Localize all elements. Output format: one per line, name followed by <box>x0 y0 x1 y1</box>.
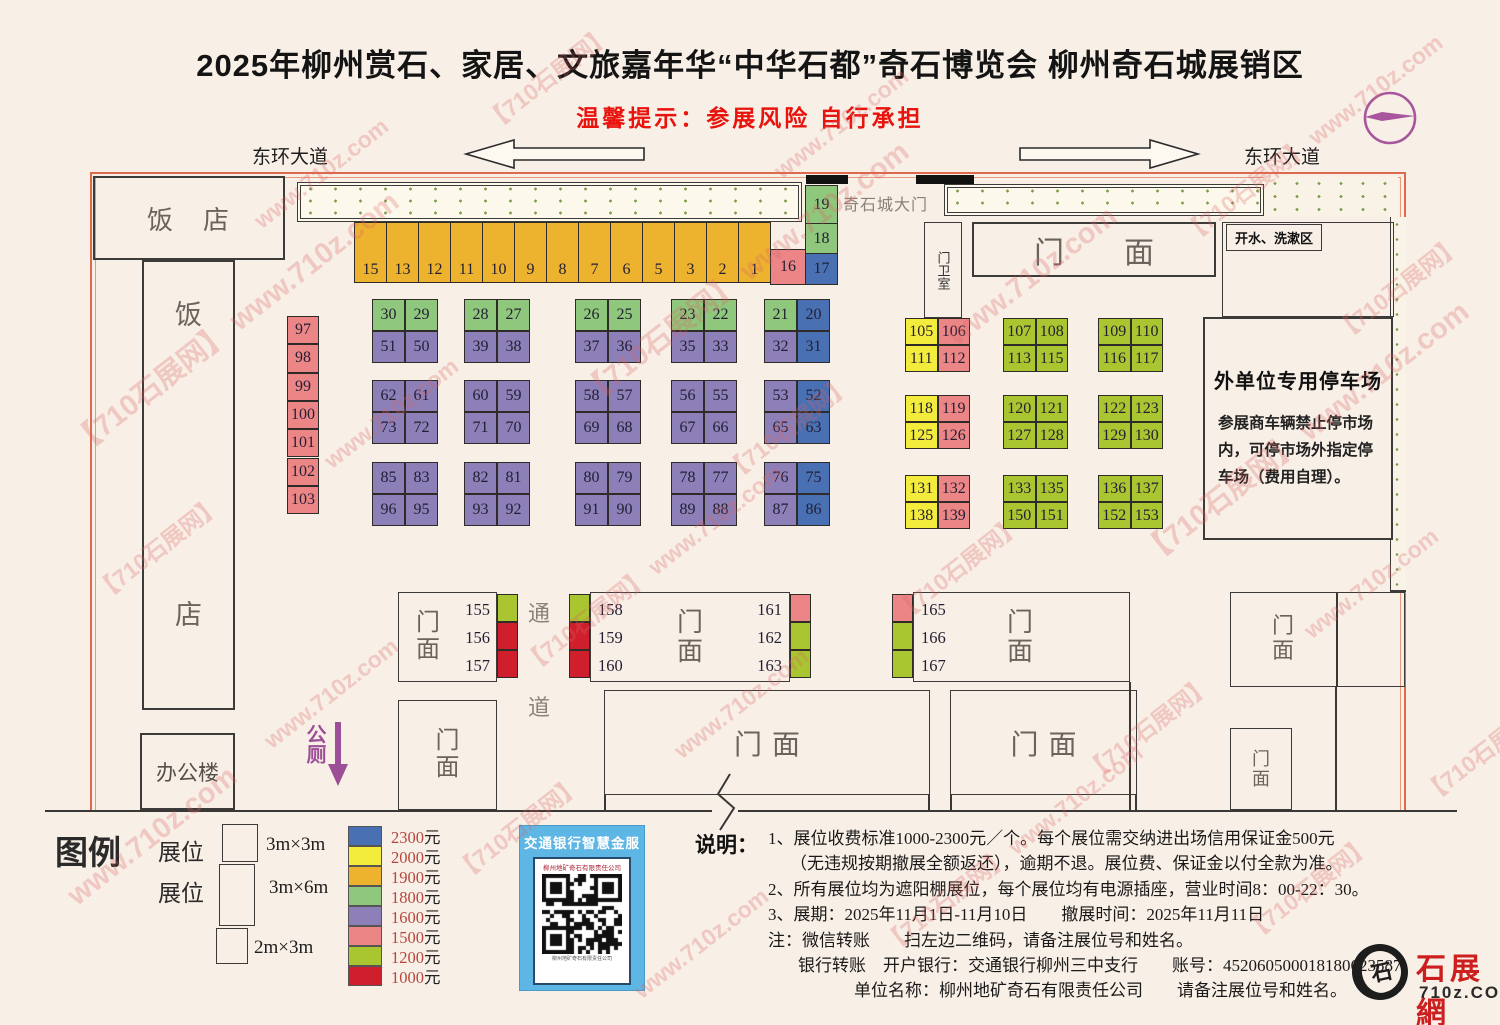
storefront-char-men: 门 <box>416 610 440 637</box>
storefront-char-men: 门 <box>1252 749 1270 769</box>
price-chip <box>892 622 913 650</box>
booth-119: 119 <box>938 395 971 422</box>
note-line: 3、展期：2025年11月1日-11月10日 撤展时间：2025年11月11日 <box>768 902 1408 927</box>
qr-card-header: 交通银行智慧金服 <box>520 832 644 852</box>
restaurant-char-dian: 店 <box>175 600 202 630</box>
booth-31: 31 <box>797 331 830 363</box>
booth-21: 21 <box>764 299 797 331</box>
booth-88: 88 <box>704 494 737 526</box>
storefront-char-men: 门 <box>1007 608 1033 637</box>
price-chip <box>892 594 913 622</box>
booth-36: 36 <box>608 331 641 363</box>
booth-103: 103 <box>287 486 319 514</box>
gate-pillar-left <box>806 175 848 184</box>
note-line: （无违规按期撤展全额返还），逾期不退。展位费、保证金以付全款为准。 <box>768 851 1408 876</box>
booth-8: 8 <box>546 222 579 283</box>
booth-130: 130 <box>1131 422 1164 449</box>
shop-booth-number: 165 <box>921 596 965 624</box>
booth-63: 63 <box>797 412 830 444</box>
booth-127: 127 <box>1003 422 1036 449</box>
booth-15: 15 <box>354 222 387 283</box>
storefront-b-label: 门 面 <box>660 598 720 676</box>
booth-129: 129 <box>1098 422 1131 449</box>
poster-warning: 温馨提示：参展风险 自行承担 <box>0 99 1500 133</box>
shop-booth-number: 155 <box>446 596 490 624</box>
storefront-f-ext-right <box>928 795 930 810</box>
booth-30: 30 <box>372 299 405 331</box>
booth-6: 6 <box>610 222 643 283</box>
restaurant-top-label: 饭 店 <box>93 176 285 260</box>
shop-booth-number: 167 <box>921 652 965 680</box>
storefront-char-men: 门 <box>1034 228 1064 272</box>
booth-111: 111 <box>905 345 938 372</box>
booth-61: 61 <box>405 380 438 412</box>
booth-2: 2 <box>706 222 739 283</box>
booth-96: 96 <box>372 494 405 526</box>
booth-9: 9 <box>514 222 547 283</box>
qr-card-inner: 柳州地矿奇石有限责任公司 柳州地矿奇石有限责任公司 <box>533 857 631 985</box>
booth-98: 98 <box>287 344 319 372</box>
booth-116: 116 <box>1098 345 1131 372</box>
booth-101: 101 <box>287 429 319 457</box>
booth-109: 109 <box>1098 318 1131 345</box>
legend-size-box-3 <box>216 928 248 964</box>
toilet-arrow-icon <box>326 722 350 788</box>
booth-66: 66 <box>704 412 737 444</box>
legend-price-swatch <box>348 826 382 846</box>
office-label: 办公楼 <box>140 733 235 810</box>
booth-78: 78 <box>671 462 704 494</box>
storefront-char-men: 门 <box>1272 614 1294 639</box>
booth-37: 37 <box>575 331 608 363</box>
booth-121: 121 <box>1036 395 1069 422</box>
booth-122: 122 <box>1098 395 1131 422</box>
legend-size-box-1 <box>222 824 258 862</box>
booth-60: 60 <box>464 380 497 412</box>
booth-50: 50 <box>405 331 438 363</box>
legend-price-swatch <box>348 906 382 926</box>
site-logo-domain: 710z.COM <box>1419 983 1500 1003</box>
legend-price-swatch <box>348 946 382 966</box>
booth-107: 107 <box>1003 318 1036 345</box>
booth-1: 1 <box>738 222 771 283</box>
note-line: 注：微信转账 扫左边二维码，请备注展位号和姓名。 <box>768 928 1408 953</box>
legend-size-dims-3: 2m×3m <box>254 937 313 959</box>
storefront-char-men: 门 <box>677 608 703 637</box>
booth-93: 93 <box>464 494 497 526</box>
legend-size-dims-1: 3m×3m <box>266 834 325 856</box>
booth-106: 106 <box>938 318 971 345</box>
booth-26: 26 <box>575 299 608 331</box>
booth-126: 126 <box>938 422 971 449</box>
booth-113: 113 <box>1003 345 1036 372</box>
booth-67: 67 <box>671 412 704 444</box>
booth-29: 29 <box>405 299 438 331</box>
parking-box: 外单位专用停车场 参展商车辆禁止停市场内，可停市场外指定停车场（费用自理）。 <box>1203 317 1393 540</box>
storefront-c-label: 门 面 <box>990 598 1050 676</box>
booth-19: 19 <box>805 185 838 224</box>
wall-line-2 <box>1335 687 1337 810</box>
price-chip <box>497 622 518 650</box>
booth-16: 16 <box>770 249 806 285</box>
booth-112: 112 <box>938 345 971 372</box>
booth-11: 11 <box>450 222 483 283</box>
booth-131: 131 <box>905 475 938 502</box>
price-chip <box>569 622 590 650</box>
legend-price-swatch <box>348 966 382 986</box>
gate-pillar-right <box>916 175 974 184</box>
booth-86: 86 <box>797 494 830 526</box>
booth-118: 118 <box>905 395 938 422</box>
booth-120: 120 <box>1003 395 1036 422</box>
road-label-left: 东环大道 <box>252 142 328 169</box>
booth-123: 123 <box>1131 395 1164 422</box>
price-chip <box>790 622 811 650</box>
site-baseline <box>45 810 1457 812</box>
storefront-char-mian: 面 <box>1252 769 1270 789</box>
watermark: www.710z.com <box>629 883 774 1004</box>
booth-76: 76 <box>764 462 797 494</box>
legend-price-swatch <box>348 926 382 946</box>
price-chip <box>892 650 913 678</box>
legend-price-row: 1000元 <box>348 964 441 988</box>
booth-82: 82 <box>464 462 497 494</box>
booth-33: 33 <box>704 331 737 363</box>
legend-price-swatch <box>348 886 382 906</box>
booth-133: 133 <box>1003 475 1036 502</box>
storefront-char-mian: 面 <box>1124 228 1154 272</box>
booth-62: 62 <box>372 380 405 412</box>
booth-70: 70 <box>497 412 530 444</box>
booth-77: 77 <box>704 462 737 494</box>
booth-27: 27 <box>497 299 530 331</box>
shop-booth-number: 159 <box>598 624 642 652</box>
booth-13: 13 <box>386 222 419 283</box>
booth-128: 128 <box>1036 422 1069 449</box>
tree-zone-corner <box>1264 177 1398 217</box>
booth-90: 90 <box>608 494 641 526</box>
storefront-h-label: 门 面 <box>1230 734 1292 804</box>
storefront-char-men: 门 <box>734 723 762 763</box>
shop-booth-number: 158 <box>598 596 642 624</box>
legend-price-swatch <box>348 866 382 886</box>
storefront-e-label: 门 面 <box>398 712 497 798</box>
poster-title: 2025年柳州赏石、家居、文旅嘉年华“中华石都”奇石博览会 柳州奇石城展销区 <box>0 40 1500 85</box>
storefront-g-label: 门 面 <box>950 690 1137 795</box>
expo-floorplan-poster: 【710石展网】 www.710z.comwww.710z.com【710石展网… <box>0 0 1500 1025</box>
storefront-g-ext-right <box>1135 795 1137 810</box>
booth-89: 89 <box>671 494 704 526</box>
booth-51: 51 <box>372 331 405 363</box>
booth-32: 32 <box>764 331 797 363</box>
booth-20: 20 <box>797 299 830 331</box>
site-logo-glyph: 石 <box>1368 955 1395 989</box>
storefront-d-divider <box>1336 593 1338 686</box>
booth-28: 28 <box>464 299 497 331</box>
booth-39: 39 <box>464 331 497 363</box>
water-area-label: 开水、洗漱区 <box>1226 224 1322 251</box>
note-line: 2、所有展位均为遮阳棚展位，每个展位均有电源插座，营业时间8：00-22：30。 <box>768 877 1408 902</box>
restaurant-char-fan: 饭 <box>175 300 202 330</box>
booth-69: 69 <box>575 412 608 444</box>
booth-95: 95 <box>405 494 438 526</box>
notes-block: 1、展位收费标准1000-2300元／个。每个展位需交纳进出场信用保证金500元… <box>768 826 1408 1004</box>
booth-115: 115 <box>1036 345 1069 372</box>
booth-125: 125 <box>905 422 938 449</box>
booth-81: 81 <box>497 462 530 494</box>
booth-56: 56 <box>671 380 704 412</box>
storefront-g-ext-left <box>950 795 952 810</box>
storefront-f-ext-left <box>604 795 606 810</box>
booth-83: 83 <box>405 462 438 494</box>
booth-132: 132 <box>938 475 971 502</box>
compass-icon <box>1352 86 1430 152</box>
booth-152: 152 <box>1098 502 1131 529</box>
baseline-break-icon <box>706 772 746 832</box>
legend-size-label-1: 展位 <box>158 833 204 867</box>
booth-7: 7 <box>578 222 611 283</box>
parking-title: 外单位专用停车场 <box>1205 365 1391 394</box>
corridor-label-bottom: 道 <box>528 690 550 722</box>
storefront-f-label: 门 面 <box>604 690 930 795</box>
storefront-char-men: 门 <box>1010 723 1038 763</box>
storefront-char-men: 门 <box>436 728 460 755</box>
booth-100: 100 <box>287 401 319 429</box>
qr-code <box>542 874 622 954</box>
booth-58: 58 <box>575 380 608 412</box>
booth-137: 137 <box>1131 475 1164 502</box>
booth-91: 91 <box>575 494 608 526</box>
booth-153: 153 <box>1131 502 1164 529</box>
price-chip <box>497 650 518 678</box>
booth-138: 138 <box>905 502 938 529</box>
storefront-char-mian: 面 <box>436 755 460 782</box>
notes-heading: 说明： <box>695 829 758 859</box>
booth-65: 65 <box>764 412 797 444</box>
qr-caption: 柳州地矿奇石有限责任公司 <box>535 955 629 962</box>
legend-price-label: 1000元 <box>391 964 441 988</box>
storefront-char-mian: 面 <box>1007 637 1033 666</box>
booth-136: 136 <box>1098 475 1131 502</box>
restaurant-side-label: 饭 店 <box>142 300 235 630</box>
booth-35: 35 <box>671 331 704 363</box>
booth-10: 10 <box>482 222 515 283</box>
legend-title: 图例 <box>55 826 121 874</box>
booth-53: 53 <box>764 380 797 412</box>
booth-139: 139 <box>938 502 971 529</box>
booth-102: 102 <box>287 458 319 486</box>
booth-105: 105 <box>905 318 938 345</box>
legend-size-box-2 <box>219 864 255 926</box>
price-chip <box>569 594 590 622</box>
arrow-right-icon <box>1018 137 1200 171</box>
booth-22: 22 <box>704 299 737 331</box>
booth-57: 57 <box>608 380 641 412</box>
booth-150: 150 <box>1003 502 1036 529</box>
shop-booth-number: 157 <box>446 652 490 680</box>
road-label-right: 东环大道 <box>1244 142 1320 169</box>
watermark: 【710石展网】 www.710z.com <box>1414 584 1500 809</box>
booth-25: 25 <box>608 299 641 331</box>
booth-3: 3 <box>674 222 707 283</box>
booth-79: 79 <box>608 462 641 494</box>
booth-5: 5 <box>642 222 675 283</box>
legend-price-swatch <box>348 846 382 866</box>
shop-booth-number: 166 <box>921 624 965 652</box>
storefront-char-mian: 面 <box>1049 723 1077 763</box>
parking-note: 参展商车辆禁止停市场内，可停市场外指定停车场（费用自理）。 <box>1218 410 1378 491</box>
booth-12: 12 <box>418 222 451 283</box>
booth-151: 151 <box>1036 502 1069 529</box>
booth-73: 73 <box>372 412 405 444</box>
storefront-a-label: 门 面 <box>406 604 450 670</box>
corridor-label-top: 通 <box>528 596 550 628</box>
booth-110: 110 <box>1131 318 1164 345</box>
qr-payment-card: 交通银行智慧金服 柳州地矿奇石有限责任公司 柳州地矿奇石有限责任公司 <box>520 826 644 990</box>
shop-booth-number: 160 <box>598 652 642 680</box>
storefront-char-mian: 面 <box>677 637 703 666</box>
booth-72: 72 <box>405 412 438 444</box>
legend-size-label-2: 展位 <box>158 874 204 908</box>
booth-18: 18 <box>805 223 838 254</box>
booth-17: 17 <box>805 253 838 285</box>
booth-55: 55 <box>704 380 737 412</box>
storefront-char-mian: 面 <box>772 723 800 763</box>
booth-99: 99 <box>287 373 319 401</box>
storefront-char-mian: 面 <box>1272 639 1294 664</box>
shop-booth-number: 156 <box>446 624 490 652</box>
guard-room-label: 门卫室 <box>924 222 962 318</box>
storefront-char-mian: 面 <box>416 637 440 664</box>
tree-strip-right <box>944 184 1264 216</box>
note-line: 1、展位收费标准1000-2300元／个。每个展位需交纳进出场信用保证金500元 <box>768 826 1408 851</box>
booth-23: 23 <box>671 299 704 331</box>
toilet-label: 公厕 <box>300 724 329 764</box>
legend-size-dims-2: 3m×6m <box>269 877 328 899</box>
note-line: 银行转账 开户银行：交通银行柳州三中支行 账号：4520605000181806… <box>768 953 1408 978</box>
booth-71: 71 <box>464 412 497 444</box>
booth-59: 59 <box>497 380 530 412</box>
price-chip <box>497 594 518 622</box>
booth-87: 87 <box>764 494 797 526</box>
booth-75: 75 <box>797 462 830 494</box>
shop-booth-number: 162 <box>738 624 782 652</box>
booth-68: 68 <box>608 412 641 444</box>
shop-booth-number: 161 <box>738 596 782 624</box>
price-chip <box>569 650 590 678</box>
tree-strip-left <box>297 182 802 222</box>
storefront-top-label: 门 面 <box>972 222 1216 277</box>
booth-117: 117 <box>1131 345 1164 372</box>
booth-85: 85 <box>372 462 405 494</box>
booth-108: 108 <box>1036 318 1069 345</box>
gate-label: 奇石城大门 <box>843 191 928 215</box>
booth-80: 80 <box>575 462 608 494</box>
booth-52: 52 <box>797 380 830 412</box>
price-chip <box>790 650 811 678</box>
price-chip <box>790 594 811 622</box>
booth-92: 92 <box>497 494 530 526</box>
booth-38: 38 <box>497 331 530 363</box>
qr-company-name: 柳州地矿奇石有限责任公司 <box>535 862 629 872</box>
storefront-d-label: 门 面 <box>1236 600 1330 678</box>
note-line: 单位名称：柳州地矿奇石有限责任公司 请备注展位号和姓名。 <box>768 978 1408 1003</box>
arrow-left-icon <box>464 137 646 171</box>
shop-booth-number: 163 <box>738 652 782 680</box>
booth-135: 135 <box>1036 475 1069 502</box>
booth-97: 97 <box>287 316 319 344</box>
wall-line-1 <box>1129 682 1131 810</box>
